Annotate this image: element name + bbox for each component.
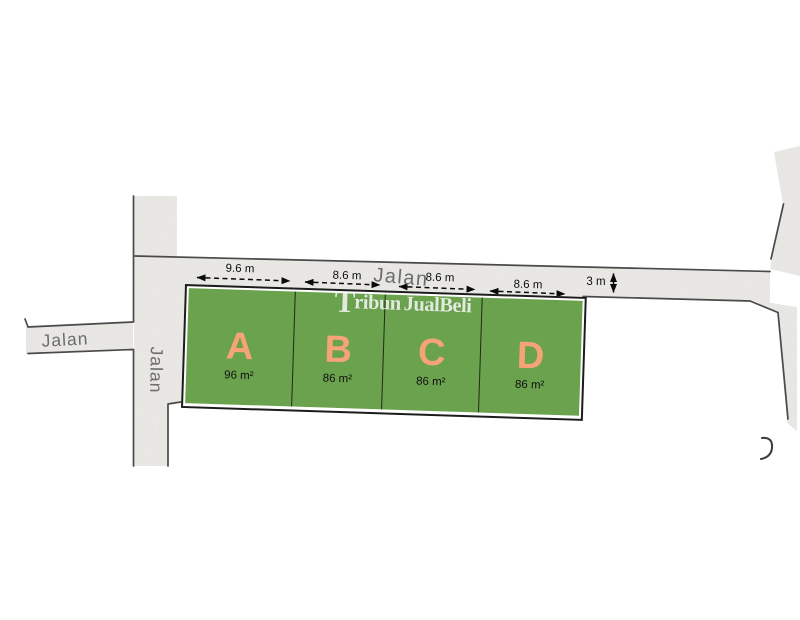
dim-label-plot-d: 8.6 m bbox=[513, 279, 542, 292]
dim-label-plot-a: 9.6 m bbox=[225, 263, 254, 276]
plot-d-label: D bbox=[480, 336, 582, 377]
plot-b-label: B bbox=[293, 330, 384, 371]
dim-label-plot-c: 8.6 m bbox=[425, 272, 454, 285]
plot-a: A 96 m² bbox=[185, 288, 294, 406]
road-label-left: Jalan bbox=[41, 328, 89, 351]
road-label-vertical: Jalan bbox=[145, 346, 167, 393]
plot-c-area: 86 m² bbox=[383, 374, 479, 389]
watermark-part2: JualBeli bbox=[403, 293, 471, 317]
plot-d-area: 86 m² bbox=[479, 378, 580, 393]
watermark-tribunjualbeli: TribunJualBeli bbox=[334, 284, 472, 325]
plot-a-area: 96 m² bbox=[186, 368, 292, 383]
plot-a-label: A bbox=[186, 326, 293, 367]
watermark-initial: T bbox=[334, 284, 356, 320]
dim-label-plot-b: 8.6 m bbox=[332, 270, 361, 283]
dim-label-road-width: 3 m bbox=[586, 276, 605, 288]
plot-c-label: C bbox=[383, 332, 480, 373]
plot-d: D 86 m² bbox=[478, 298, 583, 416]
plot-b-area: 86 m² bbox=[292, 372, 382, 387]
road-end-mark bbox=[761, 438, 772, 459]
site-plan: Jalan Jalan Jalan 9.6 m 8.6 m 8.6 m 8.6 … bbox=[0, 0, 800, 620]
watermark-part1: ribun bbox=[354, 291, 401, 315]
